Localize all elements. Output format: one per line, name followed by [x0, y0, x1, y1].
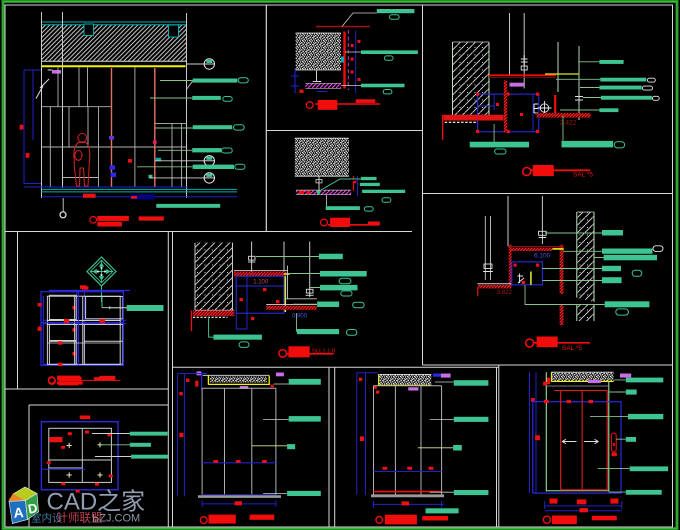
svg-text:2.422: 2.422 [560, 120, 577, 127]
svg-text:SLL1 1:8: SLL1 1:8 [312, 349, 335, 355]
svg-text:1.100: 1.100 [253, 280, 269, 286]
svg-text:SAL *5: SAL *5 [573, 172, 593, 179]
svg-text:CAD之家: CAD之家 [47, 489, 146, 516]
svg-text:ЬZJ.COM: ЬZJ.COM [92, 513, 140, 525]
svg-text:3.822: 3.822 [497, 290, 513, 296]
svg-text:SAL *5: SAL *5 [562, 345, 582, 352]
svg-text:A: A [13, 504, 24, 521]
svg-text:0.900: 0.900 [292, 314, 308, 320]
svg-text:6.100: 6.100 [534, 253, 551, 260]
